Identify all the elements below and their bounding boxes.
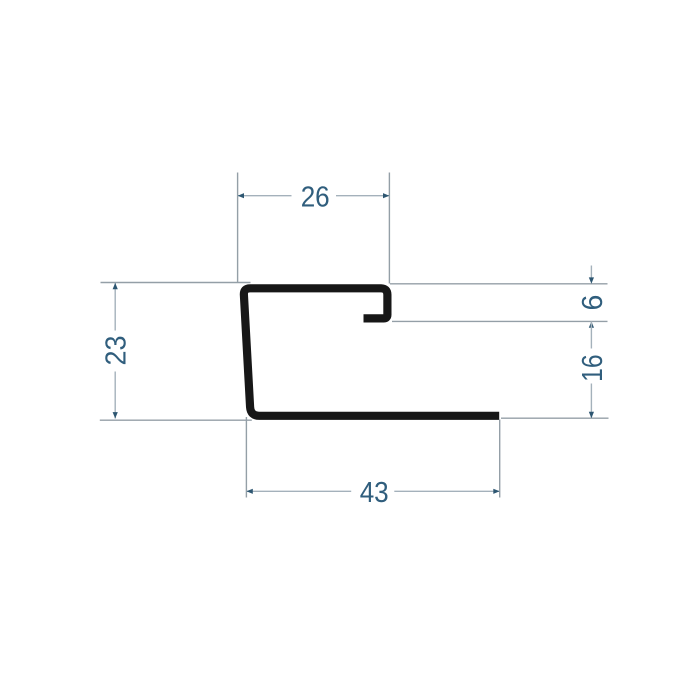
- svg-text:6: 6: [577, 295, 609, 311]
- svg-text:23: 23: [101, 336, 133, 366]
- svg-text:26: 26: [301, 182, 330, 214]
- svg-text:16: 16: [577, 354, 609, 382]
- svg-text:43: 43: [360, 477, 389, 509]
